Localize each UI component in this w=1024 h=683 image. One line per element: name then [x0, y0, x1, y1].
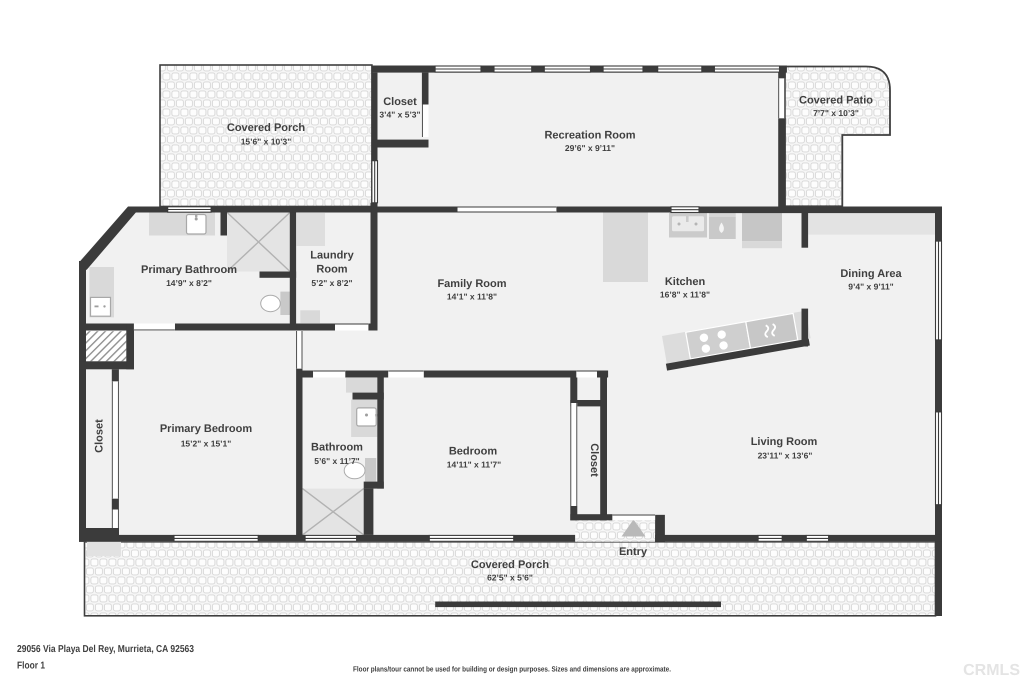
- svg-text:7’7" x 10’3": 7’7" x 10’3": [813, 108, 859, 118]
- svg-text:14’11" x 11’7": 14’11" x 11’7": [447, 460, 501, 470]
- svg-text:14’1" x 11’8": 14’1" x 11’8": [447, 292, 497, 302]
- svg-text:Floor 1: Floor 1: [17, 661, 45, 672]
- svg-text:9’4" x 9’11": 9’4" x 9’11": [848, 282, 893, 292]
- svg-text:Primary Bathroom: Primary Bathroom: [141, 264, 237, 276]
- svg-text:15’2" x 15’1": 15’2" x 15’1": [181, 439, 232, 449]
- svg-text:Entry: Entry: [619, 546, 648, 558]
- svg-text:Primary Bedroom: Primary Bedroom: [160, 423, 253, 435]
- svg-text:Kitchen: Kitchen: [665, 276, 706, 288]
- svg-text:5’6" x 11’7": 5’6" x 11’7": [314, 456, 359, 466]
- svg-text:Bedroom: Bedroom: [449, 446, 498, 458]
- svg-text:29056 Via Playa Del Rey, Murri: 29056 Via Playa Del Rey, Murrieta, CA 92…: [17, 644, 194, 655]
- svg-text:3’4" x 5’3": 3’4" x 5’3": [379, 110, 420, 120]
- svg-text:Family Room: Family Room: [437, 278, 506, 290]
- svg-text:Recreation Room: Recreation Room: [544, 130, 635, 142]
- svg-text:Living Room: Living Room: [751, 436, 818, 448]
- svg-text:Bathroom: Bathroom: [311, 442, 363, 454]
- svg-text:29’6" x 9’11": 29’6" x 9’11": [565, 143, 615, 153]
- svg-text:Closet: Closet: [94, 419, 106, 453]
- svg-text:Dining Area: Dining Area: [840, 268, 902, 280]
- svg-text:Floor plans/tour cannot be use: Floor plans/tour cannot be used for buil…: [353, 665, 671, 674]
- svg-text:Room: Room: [316, 264, 347, 276]
- svg-text:Laundry: Laundry: [310, 250, 354, 262]
- svg-text:23’11" x 13’6": 23’11" x 13’6": [758, 451, 813, 461]
- svg-text:CRMLS: CRMLS: [963, 662, 1020, 679]
- svg-text:Covered Patio: Covered Patio: [799, 95, 873, 107]
- svg-text:Covered Porch: Covered Porch: [471, 559, 550, 571]
- svg-text:14’9" x 8’2": 14’9" x 8’2": [166, 278, 212, 288]
- svg-text:5’2" x 8’2": 5’2" x 8’2": [311, 278, 352, 288]
- svg-text:15’6" x 10’3": 15’6" x 10’3": [241, 137, 292, 147]
- svg-text:Closet: Closet: [588, 443, 600, 477]
- svg-text:Closet: Closet: [383, 96, 417, 108]
- svg-text:62’5" x 5’6": 62’5" x 5’6": [487, 573, 533, 583]
- svg-text:16’8" x 11’8": 16’8" x 11’8": [660, 290, 710, 300]
- svg-text:Covered Porch: Covered Porch: [227, 122, 306, 134]
